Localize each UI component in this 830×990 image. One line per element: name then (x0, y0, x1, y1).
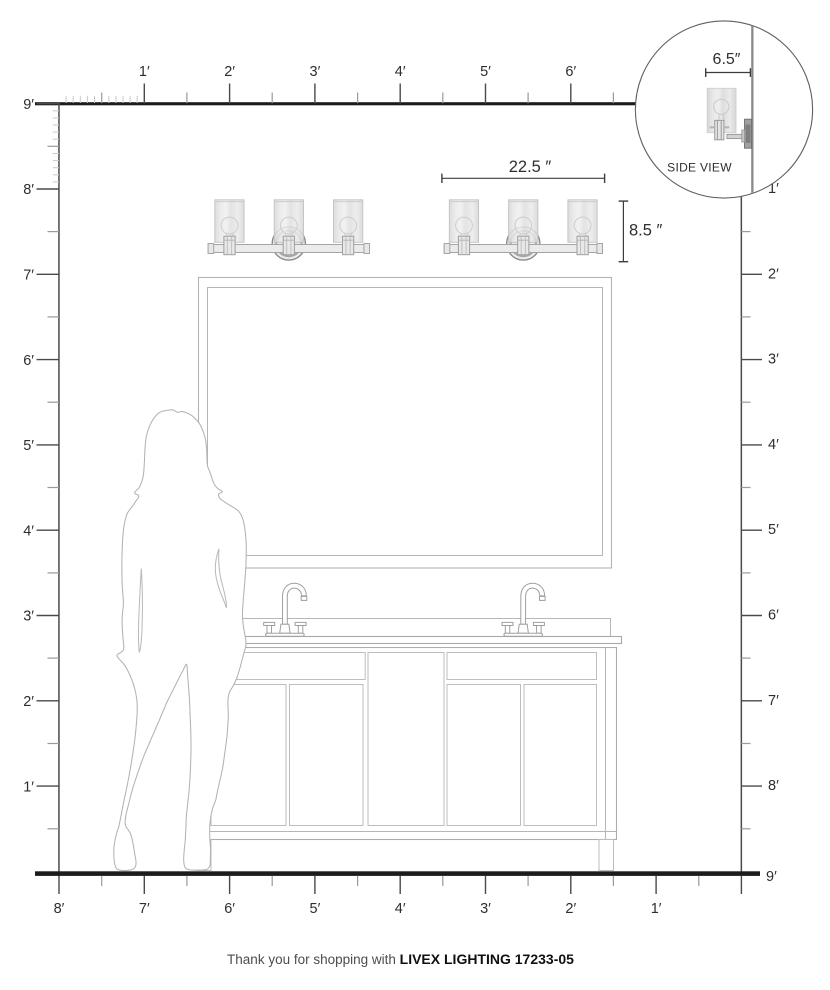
svg-text:1′: 1′ (23, 779, 34, 795)
svg-text:6′: 6′ (224, 901, 235, 917)
svg-text:7′: 7′ (23, 268, 34, 284)
svg-text:5′: 5′ (768, 522, 779, 538)
svg-text:1′: 1′ (139, 64, 150, 80)
svg-text:22.5 ″: 22.5 ″ (509, 158, 552, 176)
svg-text:4′: 4′ (395, 901, 406, 917)
svg-text:2′: 2′ (23, 694, 34, 710)
svg-text:6′: 6′ (768, 608, 779, 624)
svg-text:4′: 4′ (395, 64, 406, 80)
svg-text:5′: 5′ (310, 901, 321, 917)
svg-text:8.5 ″: 8.5 ″ (629, 222, 663, 240)
svg-text:8′: 8′ (768, 778, 779, 794)
svg-text:6.5″: 6.5″ (713, 51, 741, 68)
svg-text:9′: 9′ (766, 869, 777, 885)
svg-text:9′: 9′ (23, 97, 34, 113)
svg-text:3′: 3′ (23, 609, 34, 625)
svg-text:4′: 4′ (23, 523, 34, 539)
svg-text:4′: 4′ (768, 437, 779, 453)
svg-text:3′: 3′ (480, 901, 491, 917)
svg-text:2′: 2′ (565, 901, 576, 917)
svg-text:6′: 6′ (565, 64, 576, 80)
svg-text:SIDE VIEW: SIDE VIEW (667, 161, 732, 175)
svg-text:1′: 1′ (651, 901, 662, 917)
svg-text:7′: 7′ (139, 901, 150, 917)
svg-text:6′: 6′ (23, 353, 34, 369)
svg-text:3′: 3′ (310, 64, 321, 80)
svg-text:Thank you for shopping with LI: Thank you for shopping with LIVEX LIGHTI… (227, 951, 574, 967)
svg-text:3′: 3′ (768, 352, 779, 368)
svg-text:7′: 7′ (768, 693, 779, 709)
svg-text:8′: 8′ (54, 901, 65, 917)
svg-text:2′: 2′ (768, 266, 779, 282)
svg-text:8′: 8′ (23, 182, 34, 198)
svg-text:5′: 5′ (23, 438, 34, 454)
svg-text:2′: 2′ (224, 64, 235, 80)
svg-text:5′: 5′ (480, 64, 491, 80)
